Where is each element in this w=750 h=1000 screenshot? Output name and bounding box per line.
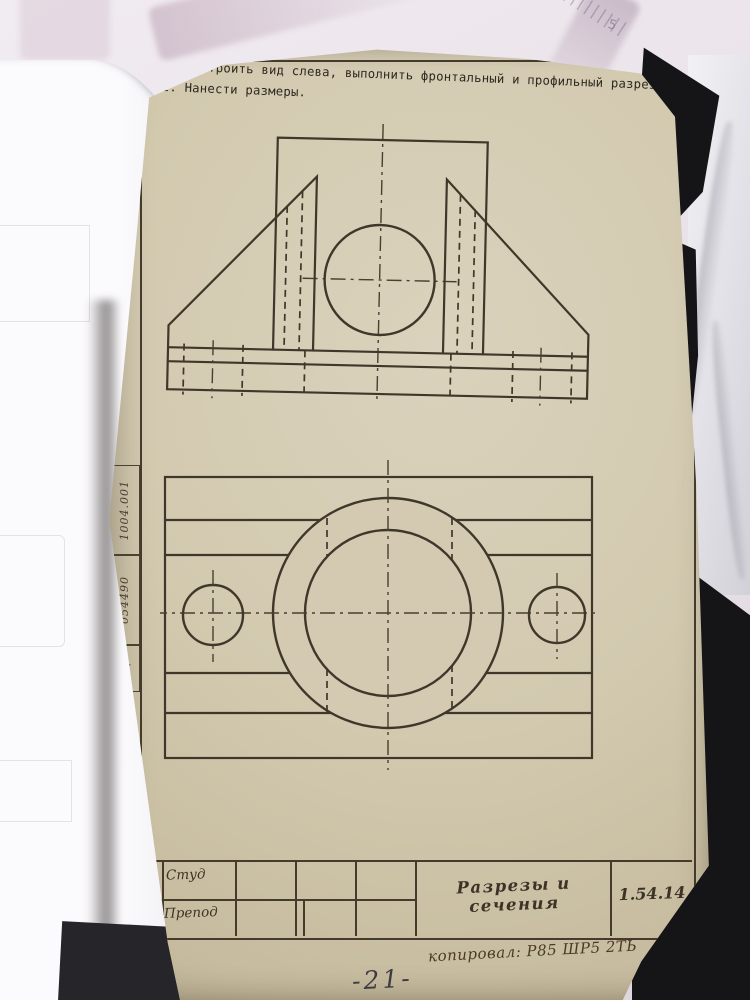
teacher-row-label: Препод [164,904,218,922]
ghost-drawing [0,225,90,322]
drawing-title: Разрезы и сечения [417,872,610,918]
page-number: -21- [351,963,413,995]
copied-by-note: копировал: Р85 ШР5 2ТЬ [428,937,638,966]
student-row-label: Студ [166,866,206,883]
ghost-drawing [0,535,65,647]
drawing-code: 1.54.14 [612,883,693,905]
top-view-drawing [160,450,600,775]
ghost-drawing [0,760,72,822]
front-view-centerlines [300,122,460,405]
photo-background: 5 1. Построить вид слева, выполнить фрон… [0,0,750,1000]
doc-number-text: 1004.001 [118,480,131,541]
gusset-left [168,173,317,350]
front-view-drawing [162,113,598,413]
title-block: Студ Препод Разрезы и сечения 1.54.14 [140,860,692,936]
book-gutter-shadow [88,300,118,960]
gusset-right [443,179,592,356]
title-block-line [303,899,305,936]
desk-streak [20,0,110,60]
drawing-sheet: 1. Построить вид слева, выполнить фронта… [100,40,715,1000]
title-block-row-divider [140,899,415,901]
title-block-line [415,862,417,936]
